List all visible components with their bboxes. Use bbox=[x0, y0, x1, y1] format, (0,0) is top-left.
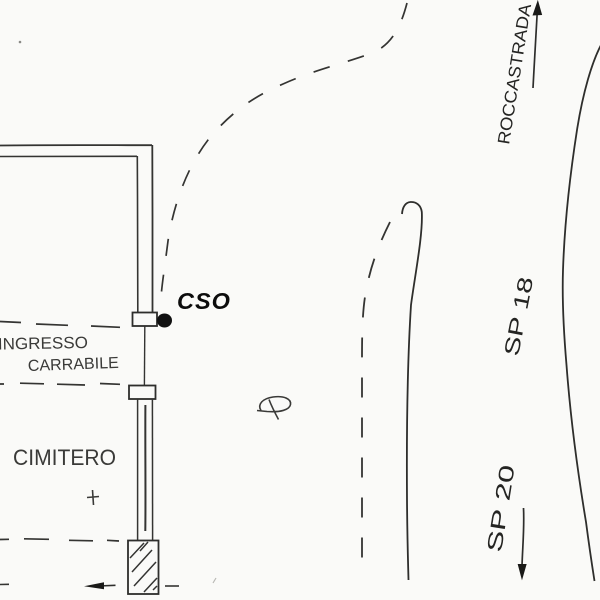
svg-text:CSO: CSO bbox=[177, 288, 231, 314]
svg-text:INGRESSO: INGRESSO bbox=[0, 334, 88, 354]
svg-text:CIMITERO: CIMITERO bbox=[13, 445, 116, 470]
svg-text:CARRABILE: CARRABILE bbox=[28, 355, 120, 375]
